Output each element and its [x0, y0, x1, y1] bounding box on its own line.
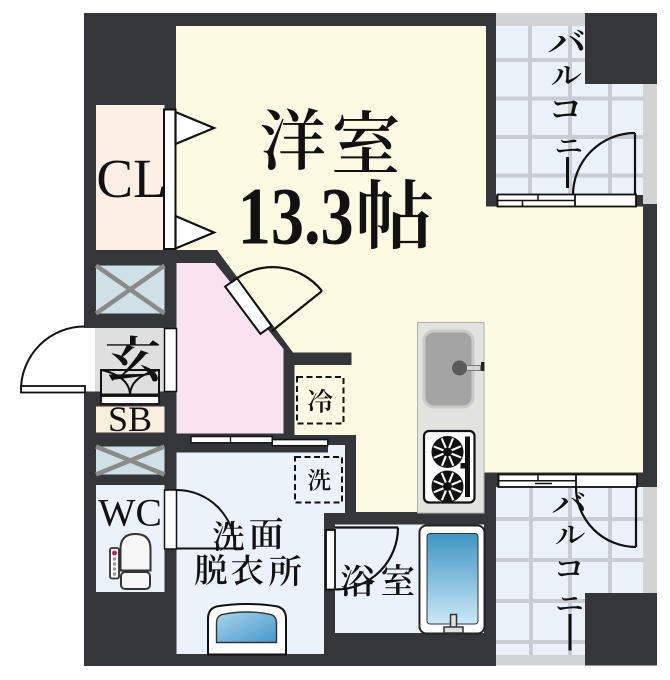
svg-text:CL: CL [96, 148, 166, 209]
svg-text:WC: WC [98, 491, 162, 535]
svg-text:13.3: 13.3 [238, 171, 354, 262]
svg-text:SB: SB [108, 399, 152, 439]
